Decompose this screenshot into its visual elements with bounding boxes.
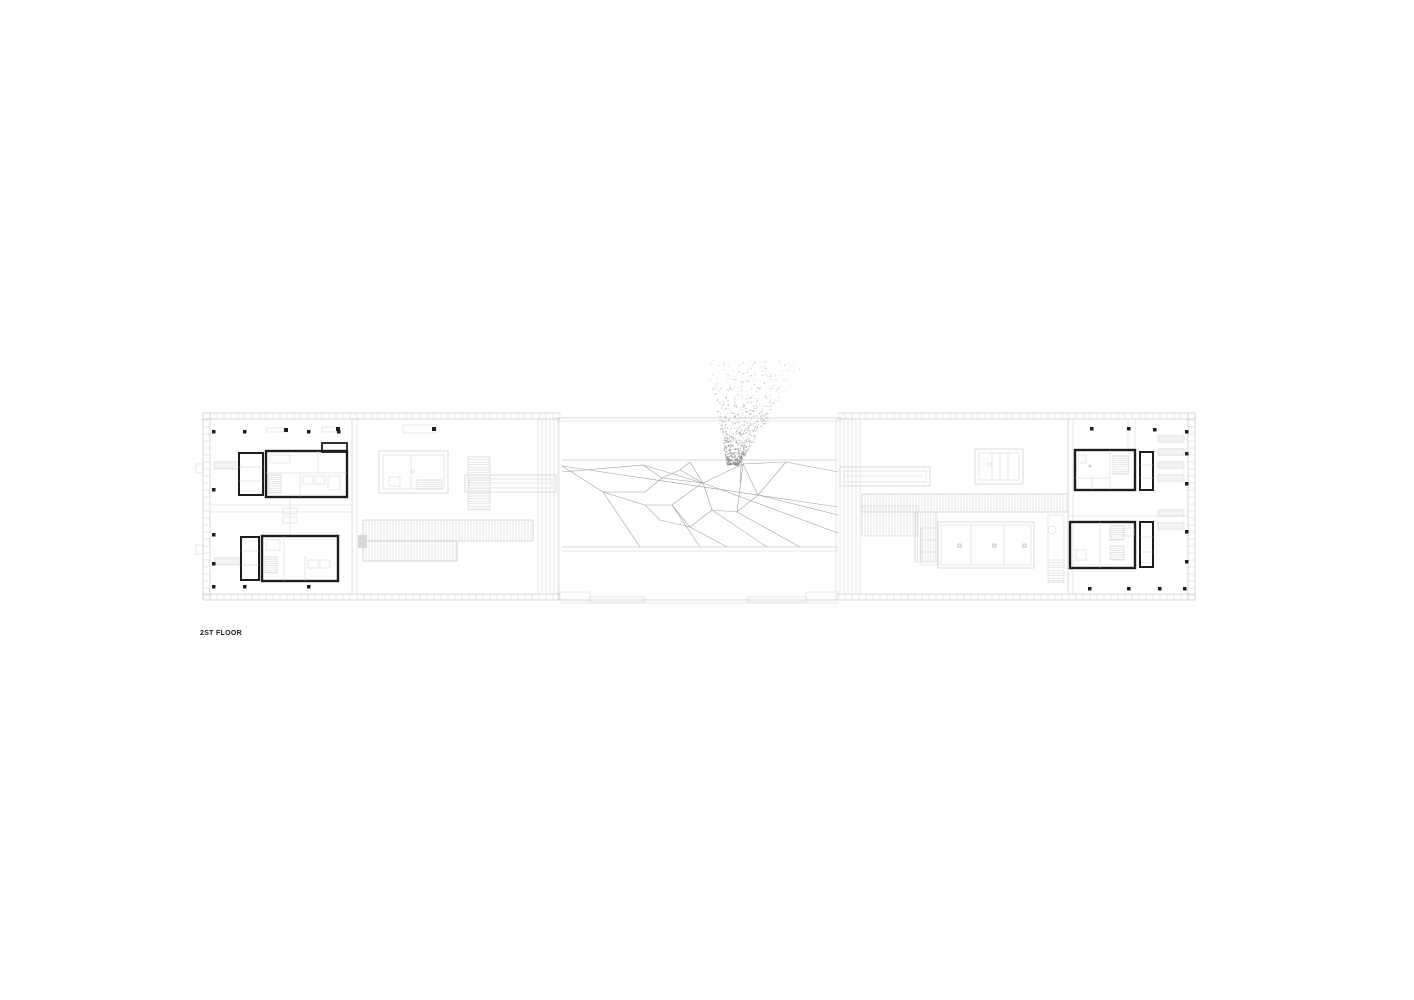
debris-point-cloud bbox=[709, 359, 801, 465]
drawing-sheet: 2ST FLOOR bbox=[0, 0, 1414, 1000]
right-roof-terrace bbox=[840, 449, 1068, 582]
floor-label: 2ST FLOOR bbox=[200, 630, 242, 637]
faceted-canopy-mesh bbox=[562, 452, 838, 547]
left-roof-terrace bbox=[358, 451, 556, 561]
floor-plan-svg bbox=[0, 0, 1414, 1000]
left-wing bbox=[196, 418, 436, 594]
